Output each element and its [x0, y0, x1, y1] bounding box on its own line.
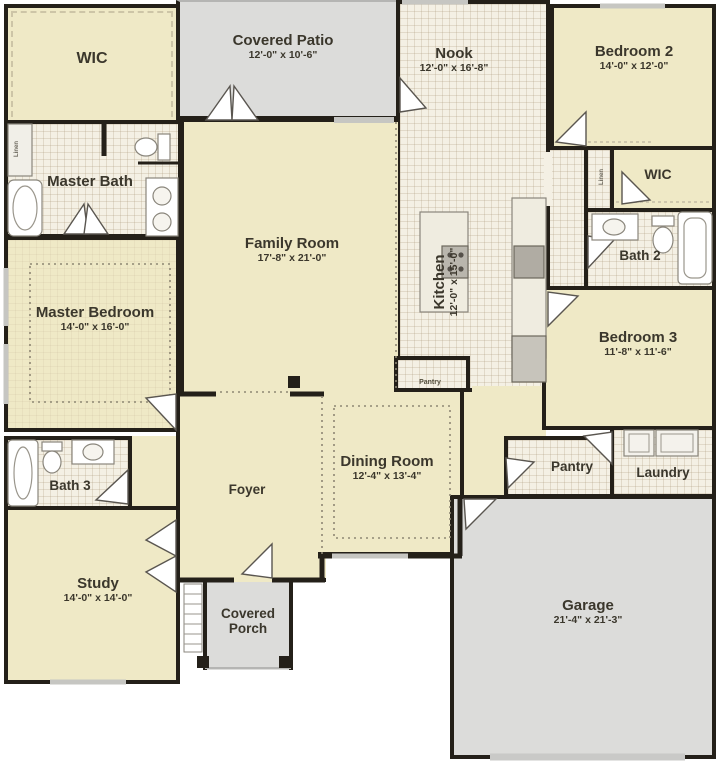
label-bath2: Bath 2 [590, 248, 690, 263]
label-master-bedroom: Master Bedroom 14'-0" x 16'-0" [30, 305, 160, 334]
label-pantry: Pantry [522, 459, 622, 474]
label-foyer: Foyer [197, 482, 297, 497]
room-laundry [610, 426, 716, 498]
label-linen-hall: Linen [590, 162, 608, 192]
label-master-bath: Master Bath [42, 174, 138, 191]
label-pantry-closet: Pantry [398, 371, 462, 389]
hall-bedroom-wing-floor [546, 150, 588, 290]
label-dining-room: Dining Room 12'-4" x 13'-4" [317, 454, 457, 483]
label-bath3: Bath 3 [30, 478, 110, 493]
hall-study-floor [130, 436, 178, 510]
room-bath3 [4, 436, 132, 510]
label-kitchen: Kitchen 12'-0" x 15'-0" [432, 212, 512, 352]
label-garage: Garage 21'-4" x 21'-3" [508, 598, 668, 627]
label-nook: Nook 12'-0" x 16'-8" [392, 46, 516, 75]
steps-icon [184, 584, 202, 652]
label-wic-master: WIC [32, 50, 152, 68]
label-linen-mbath: Linen [5, 134, 23, 164]
label-study: Study 14'-0" x 14'-0" [28, 576, 168, 605]
room-master-bedroom [4, 236, 180, 432]
label-wic2: WIC [618, 167, 698, 183]
room-garage [450, 495, 716, 759]
room-bedroom2 [550, 4, 716, 150]
floor-plan: WIC Covered Patio 12'-0" x 10'-6" Nook 1… [0, 0, 720, 768]
label-bedroom2: Bedroom 2 14'-0" x 12'-0" [554, 44, 714, 73]
label-covered-patio: Covered Patio 12'-0" x 10'-6" [193, 33, 373, 62]
label-bedroom3: Bedroom 3 11'-8" x 11'-6" [548, 330, 720, 359]
label-laundry: Laundry [613, 465, 713, 480]
label-family-room: Family Room 17'-8" x 21'-0" [200, 236, 384, 265]
label-covered-porch: Covered Porch [206, 606, 290, 636]
